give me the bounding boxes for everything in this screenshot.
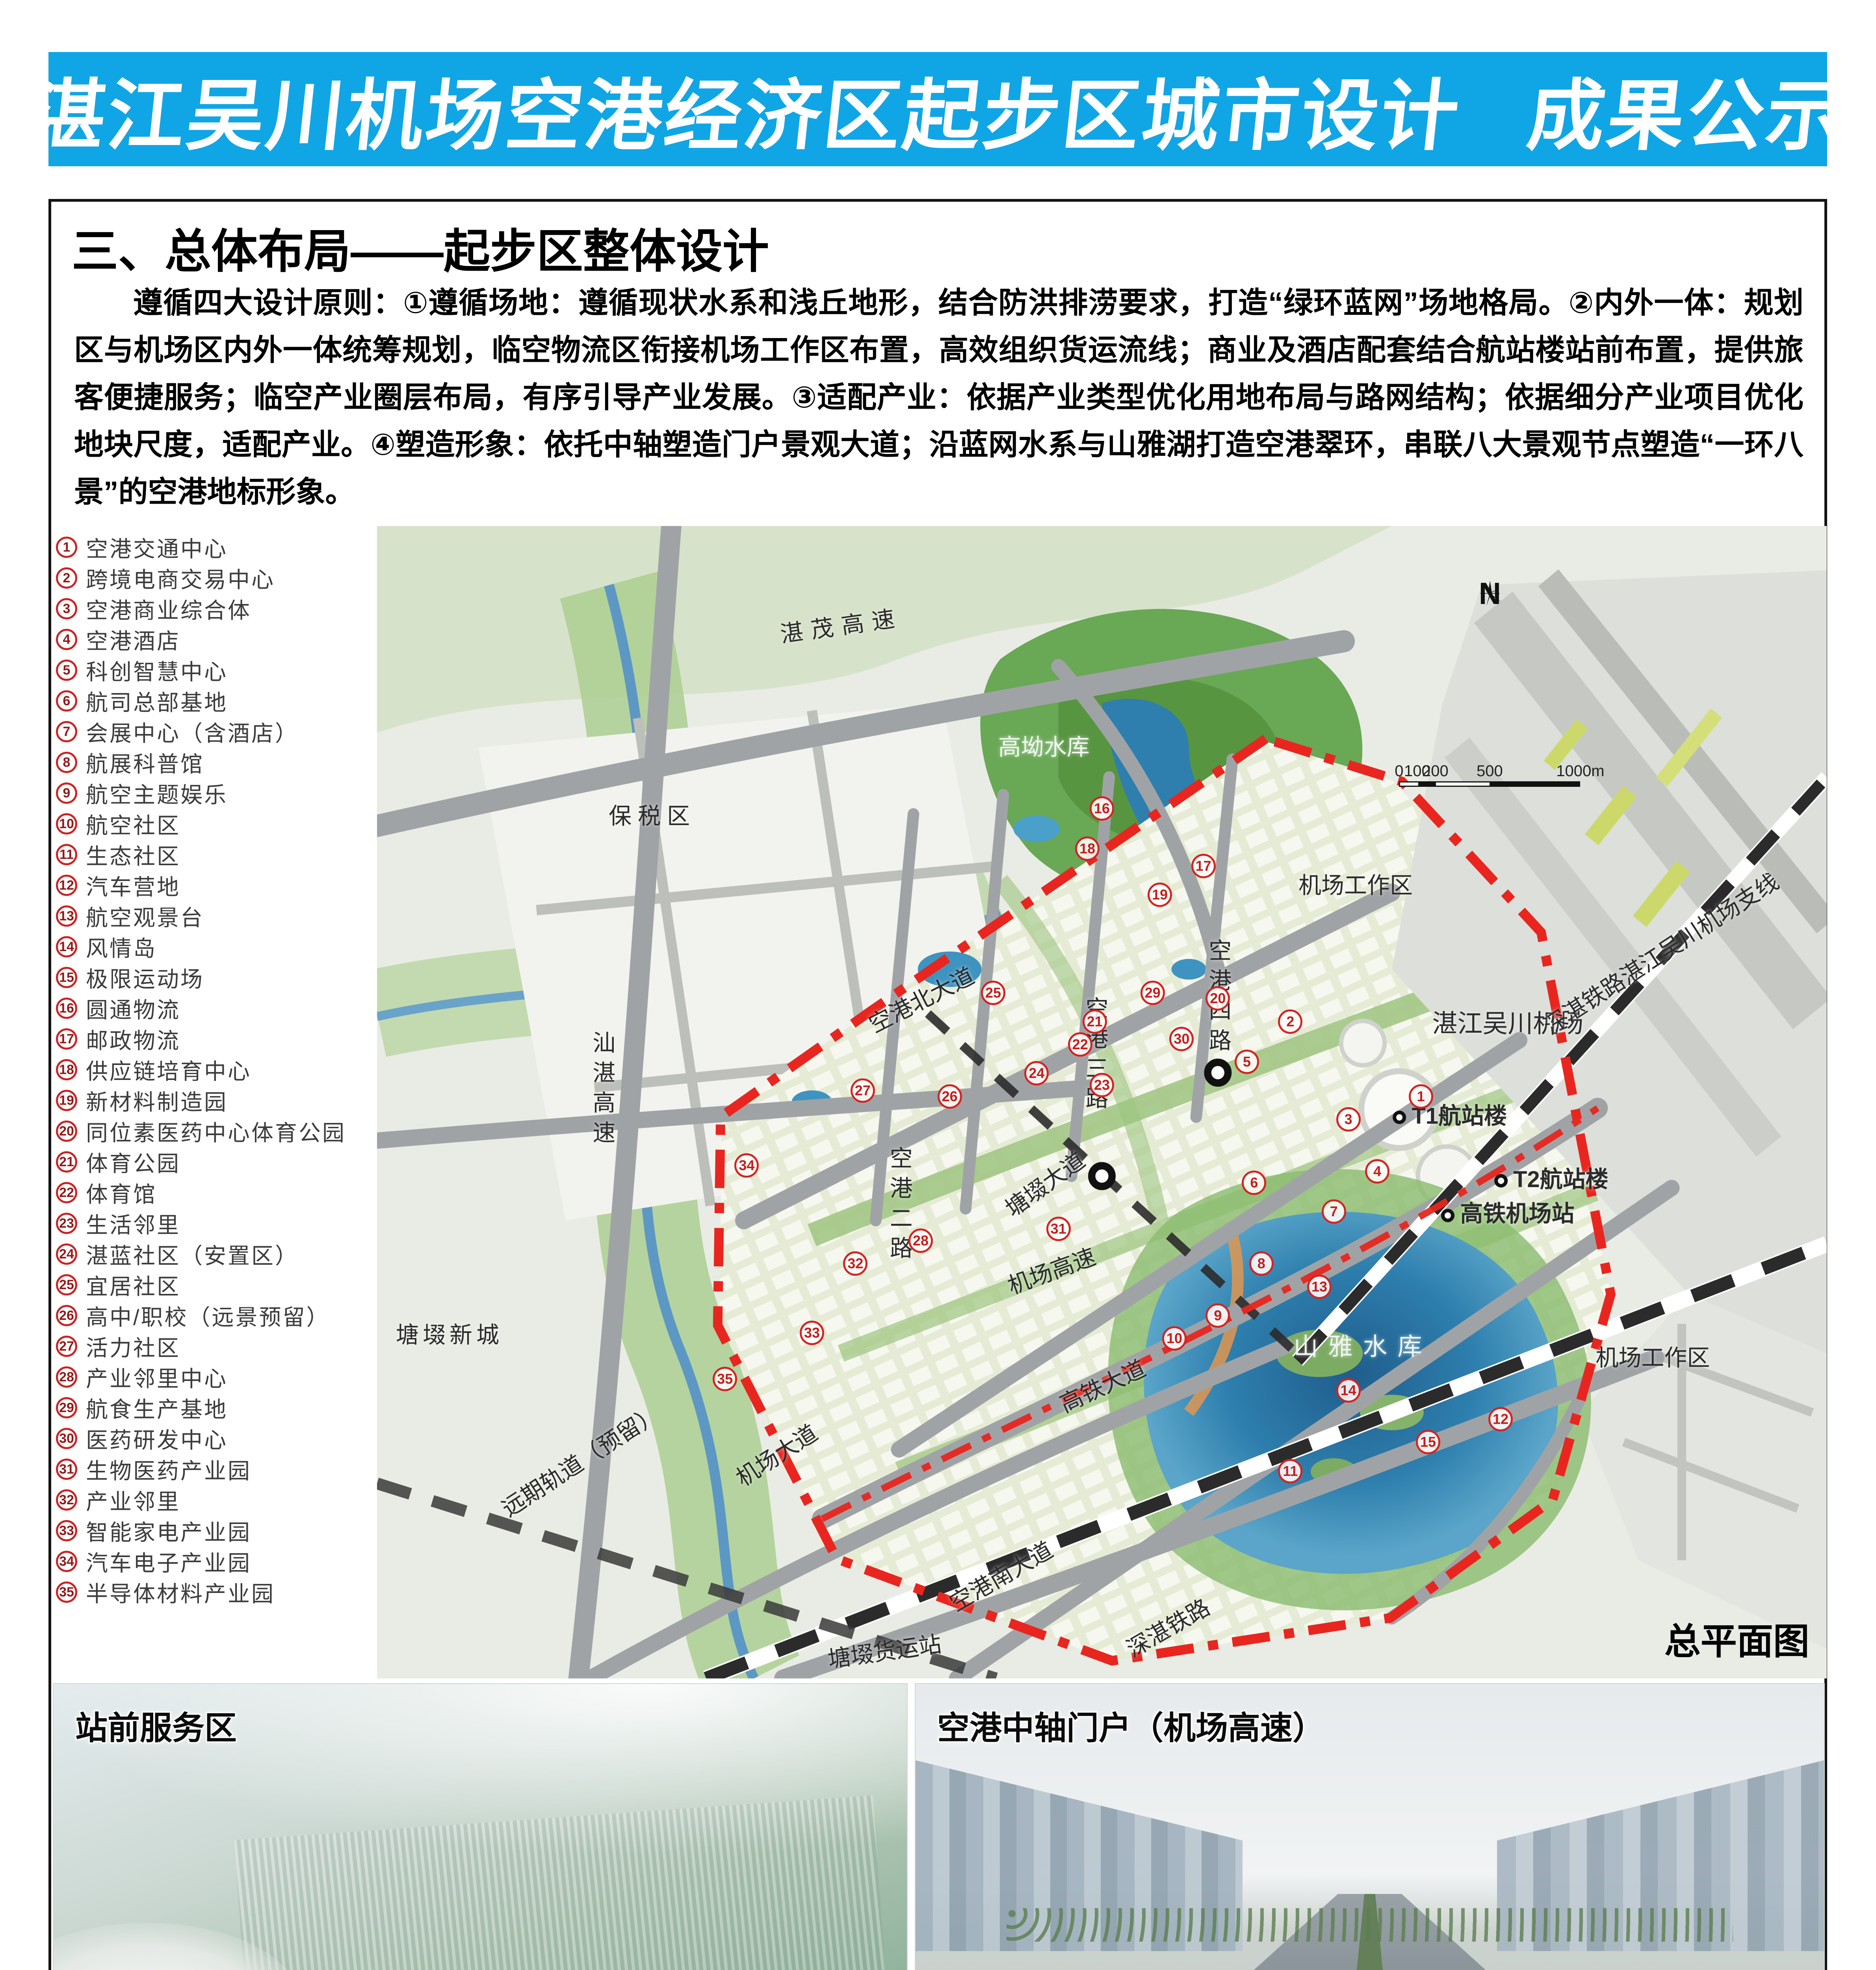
scale-bar-ticks: 01002005001000m [1399,762,1580,781]
map-marker-4: 4 [1365,1159,1389,1184]
legend-number-icon: 32 [56,1489,77,1511]
map-label: 机场工作区 [1596,1339,1710,1372]
legend-item: 19新材料制造园 [56,1085,375,1116]
legend-label: 圆通物流 [86,992,180,1024]
station-dot-icon [1441,1209,1454,1222]
map-marker-28: 28 [908,1228,933,1253]
legend-item: 18供应链培育中心 [56,1054,375,1085]
legend-number-icon: 35 [56,1582,77,1603]
legend-label: 体育馆 [86,1177,157,1209]
legend-item: 30医药研发中心 [56,1423,375,1454]
legend-item: 34汽车电子产业园 [56,1546,375,1577]
legend-item: 13航空观景台 [56,901,375,931]
map-marker-25: 25 [981,981,1005,1005]
scale-bar: 01002005001000m [1399,762,1580,787]
legend-number-icon: 16 [56,998,77,1019]
legend-item: 7会展中心（含酒店） [56,716,375,747]
map-marker-3: 3 [1336,1107,1361,1132]
legend-label: 产业邻里 [86,1484,180,1516]
photo-caption: 站前服务区 [75,1702,237,1749]
legend-number-icon: 2 [56,567,77,589]
legend-item: 20同位素医药中心体育公园 [56,1116,375,1147]
legend-list: 1空港交通中心2跨境电商交易中心3空港商业综合体4空港酒店5科创智慧中心6航司总… [56,532,375,1608]
map-title: 总平面图 [1664,1622,1809,1662]
legend-item: 22体育馆 [56,1177,375,1208]
map-marker-1: 1 [1409,1084,1433,1109]
map-label: 机场工作区 [1298,867,1413,900]
map-marker-33: 33 [800,1321,824,1345]
page-title: 湛江吴川机场空港经济区起步区城市设计 [23,54,1467,165]
legend-item: 12汽车营地 [56,870,375,901]
legend-number-icon: 1 [56,537,77,558]
legend-item: 5科创智慧中心 [56,655,375,686]
legend-number-icon: 6 [56,690,77,712]
legend-label: 智能家电产业园 [86,1515,251,1547]
legend-label: 活力社区 [86,1331,180,1362]
map-marker-24: 24 [1024,1061,1049,1085]
legend-item: 4空港酒店 [56,624,375,655]
legend-label: 航空观景台 [86,900,204,932]
legend-label: 风情岛 [86,931,157,963]
header-banner: 湛江吴川机场空港经济区起步区城市设计 成果公示 [48,52,1827,166]
map-marker-7: 7 [1322,1199,1346,1224]
legend-number-icon: 18 [56,1059,77,1080]
legend-item: 28产业邻里中心 [56,1362,375,1392]
map-label: T2航站楼 [1494,1161,1609,1194]
legend-item: 31生物医药产业园 [56,1454,375,1485]
map-marker-22: 22 [1068,1032,1092,1057]
legend-label: 邮政物流 [86,1023,180,1055]
map-label: 塘㙍新城 [396,1316,503,1349]
rendering-airport-axis-gateway: 空港中轴门户（机场高速） [915,1683,1825,1970]
legend-item: 21体育公园 [56,1147,375,1177]
map-marker-32: 32 [843,1251,867,1276]
map-marker-30: 30 [1169,1027,1194,1051]
legend-number-icon: 4 [56,629,77,650]
legend-item: 10航空社区 [56,808,375,839]
legend-label: 湛蓝社区（安置区） [86,1238,299,1270]
legend-label: 航空社区 [86,808,180,840]
legend-item: 23生活邻里 [56,1208,375,1239]
legend-label: 医药研发中心 [86,1423,228,1455]
map-marker-10: 10 [1162,1326,1187,1351]
legend-item: 2跨境电商交易中心 [56,563,375,593]
legend-label: 生态社区 [86,839,180,871]
legend-number-icon: 11 [56,844,77,865]
map-marker-2: 2 [1278,1009,1302,1034]
legend-label: 极限运动场 [86,962,204,994]
legend-number-icon: 23 [56,1213,77,1234]
legend-number-icon: 28 [56,1366,77,1388]
legend-number-icon: 22 [56,1182,77,1203]
map-marker-29: 29 [1140,981,1165,1005]
map-marker-5: 5 [1235,1050,1259,1074]
map-marker-13: 13 [1307,1275,1332,1299]
legend-number-icon: 20 [56,1121,77,1142]
legend-item: 17邮政物流 [56,1024,375,1054]
scale-tick-label: 0 [1395,762,1403,780]
design-principles-paragraph: 遵循四大设计原则：①遵循场地：遵循现状水系和浅丘地形，结合防洪排涝要求，打造“绿… [74,279,1804,515]
map-marker-23: 23 [1090,1073,1114,1097]
legend-label: 半导体材料产业园 [86,1576,275,1608]
legend-label: 生物医药产业园 [86,1453,251,1485]
legend-label: 宜居社区 [86,1269,180,1301]
legend-number-icon: 15 [56,967,77,988]
legend-number-icon: 19 [56,1090,77,1111]
legend-label: 汽车营地 [86,870,180,901]
legend-number-icon: 17 [56,1028,77,1050]
legend-number-icon: 9 [56,782,77,804]
legend-label: 新材料制造园 [86,1085,228,1117]
legend-number-icon: 33 [56,1520,77,1541]
legend-label: 供应链培育中心 [86,1054,251,1086]
legend-item: 16圆通物流 [56,993,375,1024]
map-marker-34: 34 [734,1153,759,1178]
legend-item: 27活力社区 [56,1331,375,1362]
legend-item: 15极限运动场 [56,962,375,993]
map-marker-15: 15 [1416,1430,1440,1454]
legend-number-icon: 12 [56,875,77,896]
legend-item: 33智能家电产业园 [56,1515,375,1546]
legend-number-icon: 3 [56,598,77,619]
map-marker-8: 8 [1249,1251,1274,1276]
content-box: 三、总体布局——起步区整体设计 遵循四大设计原则：①遵循场地：遵循现状水系和浅丘… [48,199,1827,1970]
map-marker-16: 16 [1090,796,1114,821]
legend-label: 空港酒店 [86,624,180,656]
compass-rose-icon [1479,578,1501,609]
map-marker-18: 18 [1075,836,1100,861]
legend-number-icon: 5 [56,660,77,681]
legend-label: 航展科普馆 [86,747,204,779]
legend-label: 科创智慧中心 [86,654,228,686]
map-marker-9: 9 [1205,1303,1230,1328]
legend-label: 会展中心（含酒店） [86,716,299,748]
legend-label: 跨境电商交易中心 [86,562,275,594]
legend-item: 9航空主题娱乐 [56,778,375,808]
legend-item: 32产业邻里 [56,1485,375,1515]
tree-row [1007,1908,1733,1942]
legend-number-icon: 8 [56,752,77,773]
legend-item: 6航司总部基地 [56,686,375,716]
legend-item: 29航食生产基地 [56,1392,375,1423]
map-label: 保税区 [609,797,696,831]
master-plan-map: 湛茂高速保税区高坳水库机场工作区湛江吴川机场深湛铁路湛江吴川机场支线T1航站楼高… [377,526,1827,1678]
legend-number-icon: 26 [56,1305,77,1326]
legend-number-icon: 31 [56,1459,77,1480]
legend-number-icon: 27 [56,1336,77,1357]
map-label: 空港二路 [882,1146,916,1266]
map-marker-21: 21 [1083,1009,1107,1034]
legend-number-icon: 7 [56,721,77,742]
legend-number-icon: 13 [56,905,77,927]
photo-caption: 空港中轴门户（机场高速） [937,1702,1325,1749]
legend-number-icon: 21 [56,1151,77,1173]
legend-label: 航空主题娱乐 [86,777,228,809]
station-dot-icon [1393,1111,1406,1124]
legend-item: 3空港商业综合体 [56,593,375,624]
map-label: 山雅水库 [1293,1327,1432,1362]
legend-label: 空港商业综合体 [86,593,251,625]
legend-number-icon: 25 [56,1274,77,1295]
station-dot-icon [1494,1174,1508,1188]
legend-item: 35半导体材料产业园 [56,1577,375,1608]
scale-tick-label: 1000m [1556,762,1604,780]
rendering-station-front: 站前服务区 [53,1683,908,1970]
legend-number-icon: 24 [56,1243,77,1265]
map-marker-19: 19 [1148,883,1172,907]
legend-label: 高中/职校（远景预留） [86,1300,330,1332]
compass: N [1479,578,1501,609]
map-marker-35: 35 [713,1367,737,1391]
legend-item: 14风情岛 [56,931,375,962]
legend-label: 产业邻里中心 [86,1361,228,1393]
legend-label: 同位素医药中心体育公园 [86,1115,346,1147]
legend-number-icon: 34 [56,1551,77,1572]
map-marker-6: 6 [1242,1171,1266,1195]
scale-tick-label: 500 [1477,762,1503,780]
map-marker-27: 27 [851,1078,875,1103]
legend-label: 汽车电子产业园 [86,1546,251,1578]
legend-number-icon: 30 [56,1428,77,1449]
map-marker-17: 17 [1191,854,1216,878]
legend-item: 8航展科普馆 [56,747,375,778]
page-title-suffix: 成果公示 [1523,54,1853,165]
legend-item: 24湛蓝社区（安置区） [56,1239,375,1269]
legend-item: 25宜居社区 [56,1269,375,1300]
legend-item: 11生态社区 [56,839,375,870]
map-label: 高坳水库 [998,729,1090,762]
map-label: 汕湛高速 [585,1031,618,1150]
city-texture [234,1795,888,1970]
map-marker-26: 26 [938,1084,962,1109]
legend-label: 空港交通中心 [86,532,228,563]
map-marker-11: 11 [1278,1459,1302,1483]
legend-label: 体育公园 [86,1146,180,1178]
map-marker-31: 31 [1046,1217,1071,1241]
section-heading: 三、总体布局——起步区整体设计 [72,214,769,281]
legend-item: 1空港交通中心 [56,532,375,563]
map-marker-20: 20 [1205,986,1230,1011]
legend-number-icon: 14 [56,936,77,957]
poster-page: { "colors": { "accent": "#10A6E6", "lege… [0,0,1876,1970]
map-marker-12: 12 [1488,1407,1513,1431]
legend-label: 生活邻里 [86,1208,180,1240]
legend-number-icon: 29 [56,1397,77,1418]
legend-number-icon: 10 [56,813,77,834]
map-marker-14: 14 [1336,1378,1361,1403]
map-label: 高铁机场站 [1441,1195,1574,1228]
legend-label: 航食生产基地 [86,1392,228,1424]
scale-tick-label: 200 [1422,762,1449,780]
legend-label: 航司总部基地 [86,685,228,717]
legend-item: 26高中/职校（远景预留） [56,1300,375,1331]
scale-bar-segments [1399,781,1580,787]
